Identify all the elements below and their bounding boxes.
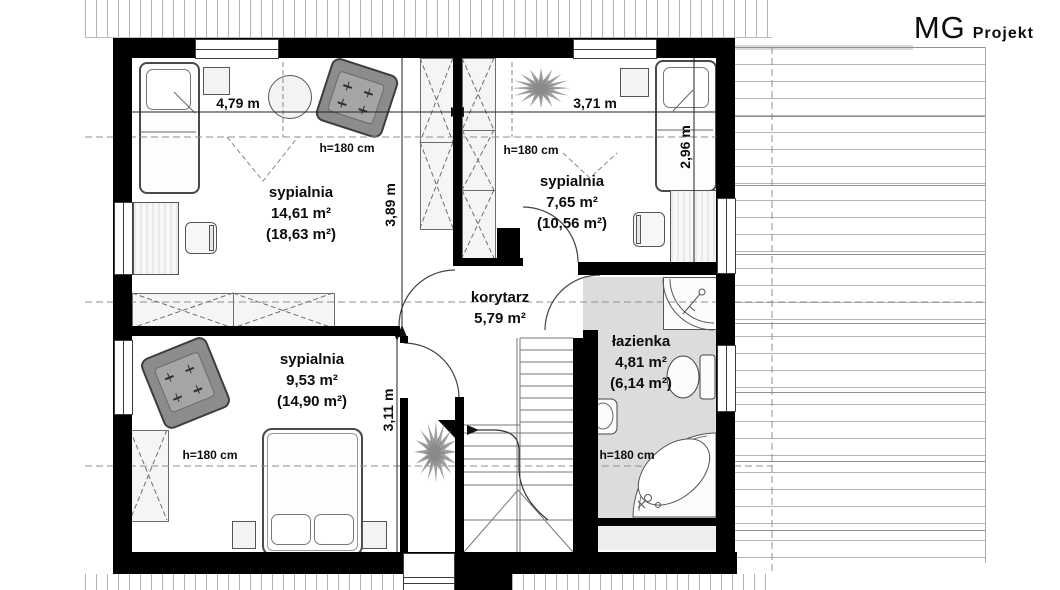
roof-slope-right bbox=[735, 47, 986, 563]
window bbox=[717, 198, 736, 274]
pillow bbox=[663, 67, 709, 108]
room-label-bedroom-bottom: sypialnia 9,53 m² (14,90 m²) bbox=[277, 349, 347, 412]
pillow bbox=[271, 514, 311, 545]
pillow bbox=[146, 69, 191, 110]
room-total-area: (18,63 m²) bbox=[266, 224, 336, 245]
window bbox=[717, 345, 736, 412]
nightstand bbox=[232, 521, 256, 549]
armchair-seat bbox=[153, 351, 215, 413]
floor-plan: sypialnia 14,61 m² (18,63 m²) sypialnia … bbox=[0, 0, 1060, 590]
room-area: 7,65 m² bbox=[537, 192, 607, 213]
logo-projekt-text: Projekt bbox=[973, 25, 1034, 43]
room-total-area: (14,90 m²) bbox=[277, 391, 347, 412]
room-label-bathroom: łazienka 4,81 m² (6,14 m²) bbox=[610, 331, 672, 394]
dimension-label: 2,96 m bbox=[677, 125, 693, 169]
room-area: 4,81 m² bbox=[610, 352, 672, 373]
bathroom-doorway-floor bbox=[583, 277, 598, 330]
wall-stairwell bbox=[573, 338, 583, 552]
wardrobe bbox=[420, 58, 455, 144]
room-total-area: (6,14 m²) bbox=[610, 373, 672, 394]
room-label-corridor: korytarz 5,79 m² bbox=[471, 287, 529, 329]
wall-interior bbox=[453, 38, 462, 266]
desk-chair bbox=[633, 212, 665, 247]
logo-mg-text: MG bbox=[914, 10, 966, 46]
room-name: sypialnia bbox=[277, 349, 347, 370]
wall-angled-stub bbox=[438, 420, 455, 438]
window bbox=[195, 39, 279, 59]
brand-logo: MG Projekt bbox=[914, 10, 1034, 46]
stairs-walk-line bbox=[478, 430, 548, 520]
window bbox=[114, 202, 133, 275]
wardrobe bbox=[130, 430, 169, 522]
roof-hatch-top bbox=[85, 0, 772, 38]
wardrobe bbox=[420, 142, 455, 230]
room-area: 5,79 m² bbox=[471, 308, 529, 329]
dimension-label: 4,79 m bbox=[216, 95, 260, 111]
room-name: sypialnia bbox=[266, 182, 336, 203]
dimension-label: 3,71 m bbox=[573, 95, 617, 111]
room-area: 14,61 m² bbox=[266, 203, 336, 224]
room-area: 9,53 m² bbox=[277, 370, 347, 391]
armchair bbox=[138, 334, 232, 431]
double-bed bbox=[262, 428, 363, 556]
wall-interior bbox=[587, 518, 716, 526]
ceiling-height-label: h=180 cm bbox=[503, 143, 558, 157]
plant bbox=[414, 421, 458, 483]
armchair bbox=[314, 56, 401, 140]
wardrobe bbox=[462, 130, 496, 192]
wall-footing bbox=[453, 574, 512, 590]
plant bbox=[512, 68, 570, 108]
nightstand bbox=[362, 521, 387, 549]
window bbox=[573, 39, 657, 59]
room-total-area: (10,56 m²) bbox=[537, 213, 607, 234]
wall-exterior-right bbox=[716, 38, 735, 562]
armchair-seat bbox=[327, 70, 386, 125]
wardrobe bbox=[462, 58, 496, 132]
ceiling-height-label: h=180 cm bbox=[599, 448, 654, 462]
wall-interior bbox=[400, 398, 408, 552]
wall-interior bbox=[132, 326, 400, 336]
roof-hatch-bottom-right bbox=[512, 574, 773, 590]
roof-hatch-bottom-left bbox=[85, 574, 403, 590]
wall-interior bbox=[578, 262, 716, 275]
shower-tray bbox=[663, 277, 718, 330]
ceiling-height-label: h=180 cm bbox=[182, 448, 237, 462]
desk-chair bbox=[185, 222, 217, 254]
room-name: sypialnia bbox=[537, 171, 607, 192]
wall-pier bbox=[497, 228, 520, 262]
wall-stairwell bbox=[455, 397, 464, 552]
room-label-bedroom-top-left: sypialnia 14,61 m² (18,63 m²) bbox=[266, 182, 336, 245]
wall-exterior-left bbox=[113, 38, 132, 562]
staircase bbox=[464, 338, 573, 552]
window bbox=[114, 340, 133, 415]
nightstand bbox=[203, 67, 230, 95]
desk bbox=[670, 190, 718, 265]
room-label-bedroom-top-right: sypialnia 7,65 m² (10,56 m²) bbox=[537, 171, 607, 234]
dimension-label: 3,11 m bbox=[380, 389, 396, 432]
round-table bbox=[268, 75, 312, 119]
wardrobe bbox=[462, 190, 496, 260]
sideboard bbox=[132, 293, 235, 330]
ceiling-height-label: h=180 cm bbox=[319, 141, 374, 155]
window bbox=[403, 553, 455, 590]
wall-stub bbox=[400, 336, 408, 343]
single-bed bbox=[139, 62, 200, 194]
sideboard bbox=[233, 293, 335, 330]
room-name: korytarz bbox=[471, 287, 529, 308]
room-name: łazienka bbox=[610, 331, 672, 352]
pillow bbox=[314, 514, 354, 545]
desk bbox=[133, 202, 179, 275]
dimension-label: 3,89 m bbox=[382, 183, 398, 227]
stool bbox=[620, 68, 649, 97]
bathroom-niche bbox=[598, 526, 716, 550]
